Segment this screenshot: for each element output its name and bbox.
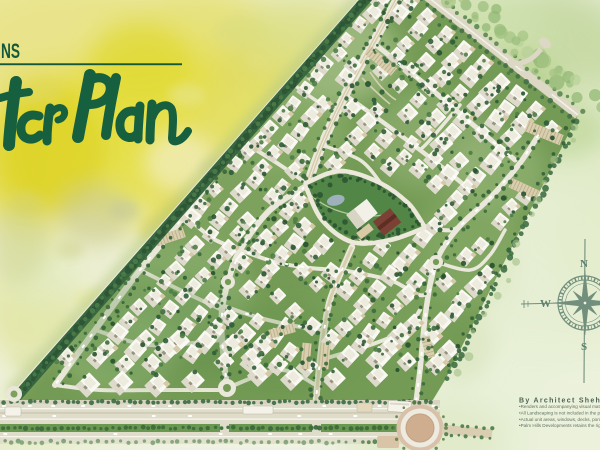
svg-text:•Actual unit areas, windows, d: •Actual unit areas, windows, decks, porc…: [519, 417, 600, 422]
svg-text:N: N: [580, 258, 588, 270]
svg-text:NS: NS: [1, 40, 20, 63]
svg-text:•All Landscaping is not includ: •All Landscaping is not included in the …: [519, 410, 600, 415]
svg-text:W: W: [540, 298, 551, 310]
svg-text:•Renders and accompanying visu: •Renders and accompanying visual materia…: [519, 404, 600, 409]
svg-text:S: S: [581, 341, 587, 353]
svg-text:•Palm Hills Developments retai: •Palm Hills Developments retains the rig…: [519, 423, 600, 428]
